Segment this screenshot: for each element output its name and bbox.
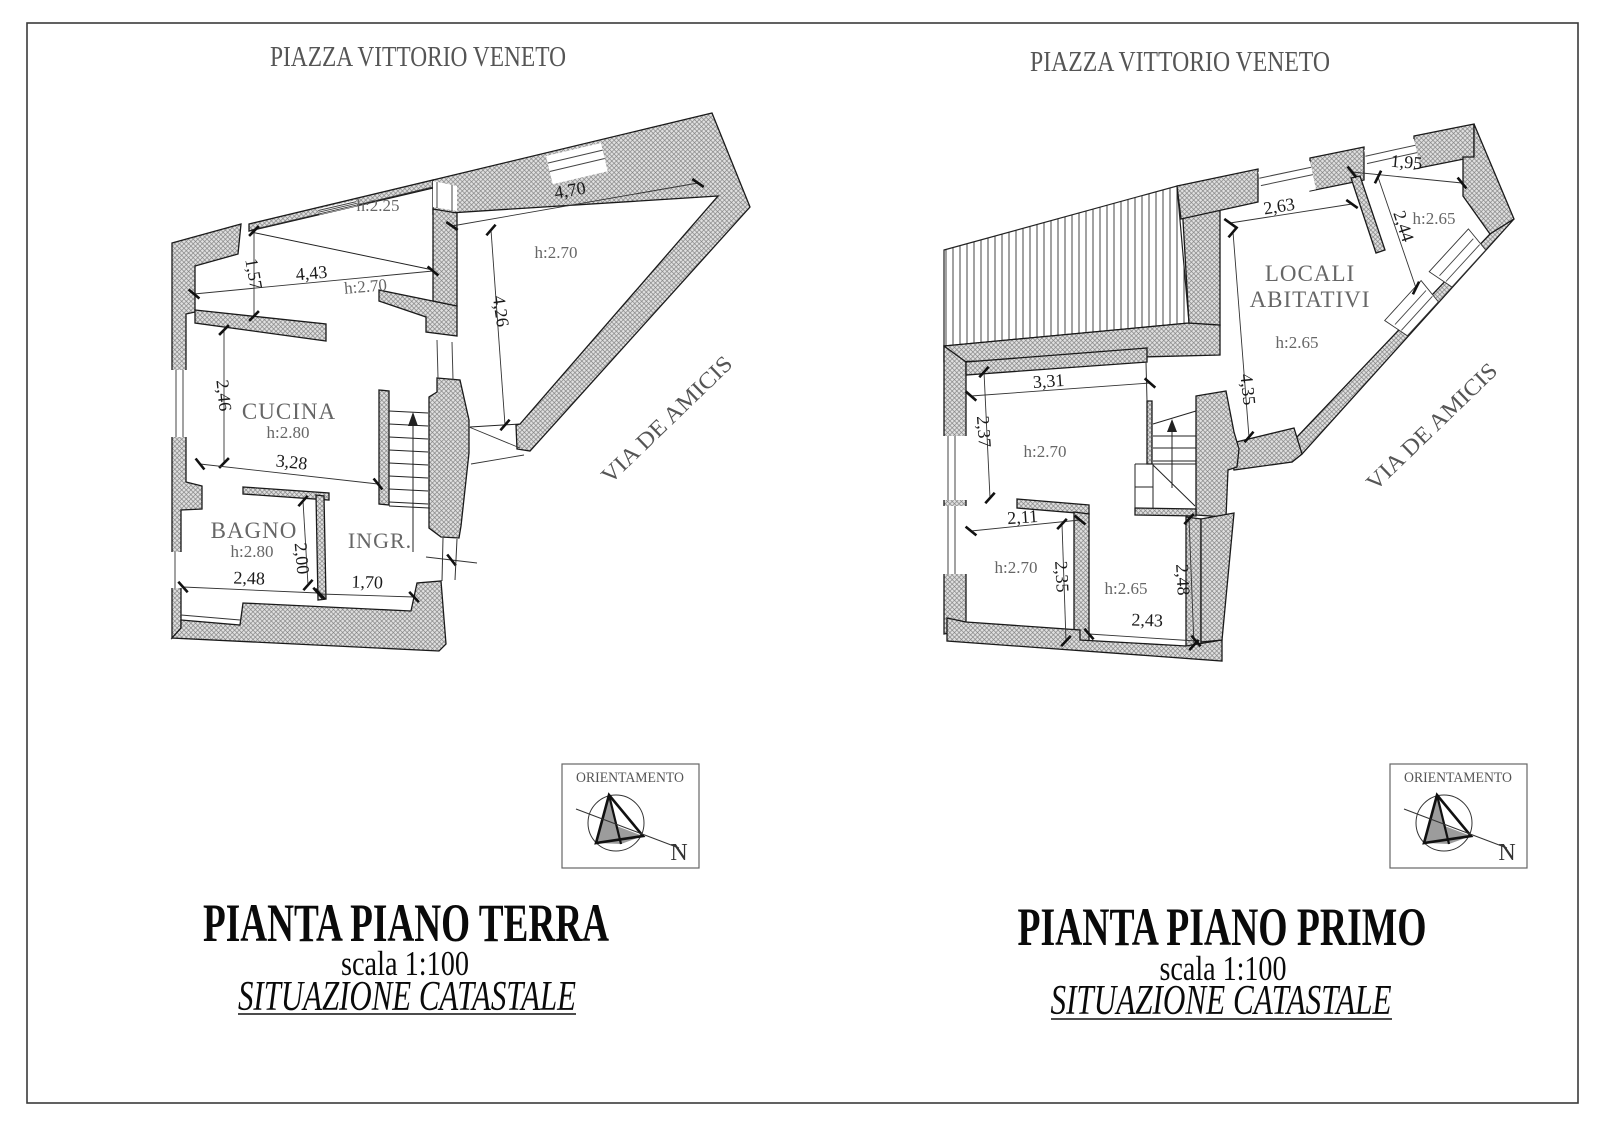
svg-text:2,00: 2,00	[291, 542, 314, 575]
svg-text:SITUAZIONE CATASTALE: SITUAZIONE CATASTALE	[238, 974, 576, 1020]
svg-text:4,26: 4,26	[489, 294, 513, 328]
svg-text:PIANTA PIANO PRIMO: PIANTA PIANO PRIMO	[1018, 897, 1427, 957]
svg-text:ABITATIVI: ABITATIVI	[1250, 287, 1371, 312]
svg-text:4,35: 4,35	[1236, 373, 1259, 406]
svg-text:2,11: 2,11	[1006, 506, 1038, 528]
svg-text:CUCINA: CUCINA	[242, 399, 336, 424]
svg-text:h:2.65: h:2.65	[1276, 333, 1319, 352]
svg-text:3,31: 3,31	[1032, 370, 1065, 392]
svg-text:VIA DE AMICIS: VIA DE AMICIS	[1361, 358, 1502, 495]
svg-text:VIA DE AMICIS: VIA DE AMICIS	[596, 351, 737, 488]
svg-text:PIAZZA VITTORIO VENETO: PIAZZA VITTORIO VENETO	[270, 41, 566, 73]
svg-text:SITUAZIONE CATASTALE: SITUAZIONE CATASTALE	[1051, 978, 1392, 1024]
svg-text:h:2.70: h:2.70	[1024, 442, 1067, 461]
svg-text:ORIENTAMENTO: ORIENTAMENTO	[1404, 770, 1512, 786]
svg-text:h:2.70: h:2.70	[995, 558, 1038, 577]
svg-text:h:2.70: h:2.70	[343, 275, 387, 298]
svg-text:PIAZZA VITTORIO VENETO: PIAZZA VITTORIO VENETO	[1030, 46, 1330, 78]
svg-text:h:2.70: h:2.70	[535, 243, 578, 262]
svg-text:ORIENTAMENTO: ORIENTAMENTO	[576, 770, 684, 786]
svg-text:N: N	[1498, 840, 1515, 866]
svg-text:N: N	[670, 840, 687, 866]
svg-text:2,48: 2,48	[1172, 563, 1194, 596]
svg-text:2,48: 2,48	[233, 567, 265, 588]
svg-text:h:2.80: h:2.80	[267, 423, 310, 442]
svg-text:h:2.80: h:2.80	[231, 542, 274, 561]
svg-text:1,95: 1,95	[1390, 151, 1423, 174]
svg-text:h:2.65: h:2.65	[1105, 579, 1148, 598]
svg-text:3,28: 3,28	[275, 450, 308, 473]
svg-text:2,35: 2,35	[1051, 560, 1073, 593]
svg-text:1,70: 1,70	[351, 571, 383, 592]
svg-text:BAGNO: BAGNO	[211, 518, 298, 543]
svg-text:1,57: 1,57	[241, 257, 266, 291]
svg-text:4,43: 4,43	[295, 262, 328, 285]
svg-text:LOCALI: LOCALI	[1265, 261, 1355, 286]
svg-text:2,37: 2,37	[973, 415, 995, 448]
svg-text:2,43: 2,43	[1131, 609, 1163, 630]
svg-text:2,46: 2,46	[212, 379, 235, 412]
svg-text:INGR.: INGR.	[348, 528, 412, 553]
svg-text:h:2.25: h:2.25	[357, 196, 400, 215]
svg-text:h:2.65: h:2.65	[1413, 209, 1456, 228]
svg-text:2,63: 2,63	[1262, 194, 1296, 219]
